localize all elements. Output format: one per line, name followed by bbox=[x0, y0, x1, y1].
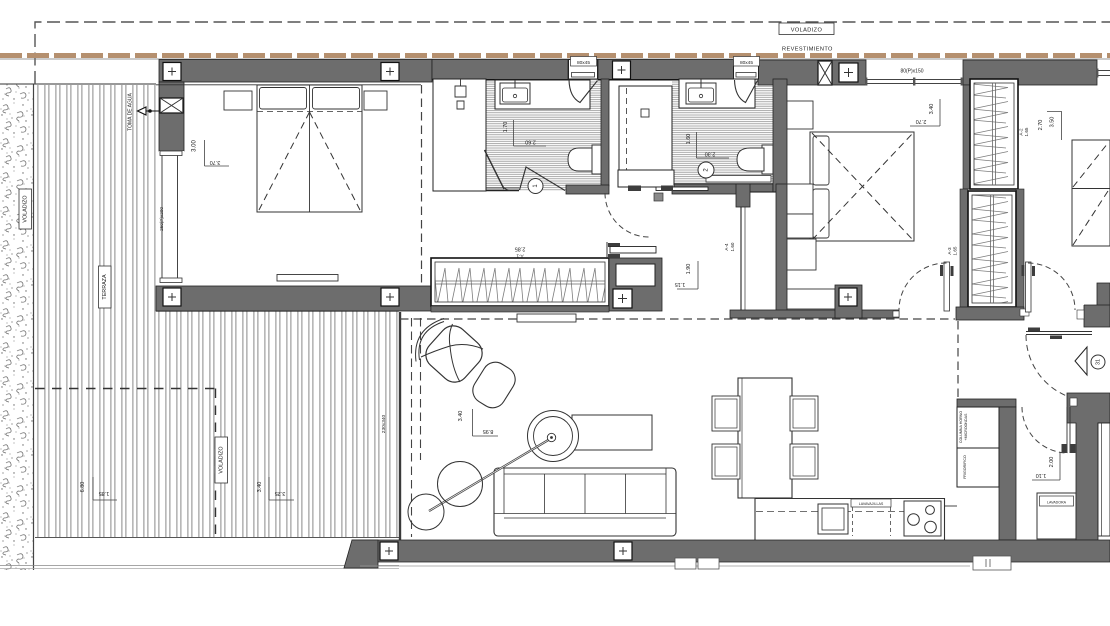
svg-text:LAVAVAJILLAS: LAVAVAJILLAS bbox=[859, 502, 884, 506]
svg-text:A-2: A-2 bbox=[1019, 128, 1024, 136]
svg-text:31: 31 bbox=[1095, 359, 1101, 365]
svg-text:3.40: 3.40 bbox=[458, 411, 464, 422]
svg-text:1.65: 1.65 bbox=[1024, 127, 1029, 136]
svg-text:1.85: 1.85 bbox=[99, 490, 110, 496]
svg-text:3.40: 3.40 bbox=[929, 104, 935, 115]
svg-text:2.60: 2.60 bbox=[525, 139, 536, 145]
svg-text:FRIGORIFICO: FRIGORIFICO bbox=[963, 455, 967, 479]
svg-text:TERRAZA: TERRAZA bbox=[102, 274, 108, 300]
svg-text:2.85: 2.85 bbox=[515, 246, 526, 252]
svg-text:3.70: 3.70 bbox=[210, 159, 221, 165]
svg-text:TOMA DE AGUA: TOMA DE AGUA bbox=[128, 92, 134, 130]
svg-text:80x45: 80x45 bbox=[740, 60, 753, 66]
svg-text:2.30: 2.30 bbox=[705, 151, 716, 157]
svg-text:2.70: 2.70 bbox=[916, 118, 927, 124]
svg-text:2.00: 2.00 bbox=[1049, 457, 1055, 468]
svg-text:3.40: 3.40 bbox=[257, 482, 263, 493]
svg-text:VOLADIZO: VOLADIZO bbox=[791, 28, 823, 34]
svg-text:1.15: 1.15 bbox=[675, 281, 686, 287]
svg-text:8.95: 8.95 bbox=[483, 428, 494, 434]
svg-text:260(P)x200: 260(P)x200 bbox=[159, 207, 164, 231]
svg-text:230x340: 230x340 bbox=[381, 414, 387, 433]
svg-text:6.80: 6.80 bbox=[80, 482, 86, 493]
svg-text:REVESTIMIENTO: REVESTIMIENTO bbox=[782, 47, 833, 53]
svg-text:A-3: A-3 bbox=[947, 247, 952, 255]
svg-text:3.00: 3.00 bbox=[192, 140, 198, 152]
svg-text:A-1: A-1 bbox=[516, 254, 524, 259]
svg-text:VOLADIZO: VOLADIZO bbox=[22, 195, 28, 222]
svg-text:LAVADORA: LAVADORA bbox=[1047, 501, 1067, 505]
svg-text:3.50: 3.50 bbox=[1050, 117, 1056, 128]
svg-text:1.90: 1.90 bbox=[686, 264, 692, 275]
svg-text:1.65: 1.65 bbox=[953, 246, 958, 255]
svg-text:2.70: 2.70 bbox=[1038, 120, 1044, 131]
svg-text:80x45: 80x45 bbox=[577, 60, 590, 66]
svg-text:1.60: 1.60 bbox=[686, 134, 692, 145]
svg-text:+MICROONDAS: +MICROONDAS bbox=[964, 413, 968, 440]
svg-text:COLUMNA HORNO: COLUMNA HORNO bbox=[959, 411, 963, 443]
svg-text:1.70: 1.70 bbox=[503, 122, 509, 133]
svg-text:1.60: 1.60 bbox=[730, 242, 735, 251]
svg-text:A-4: A-4 bbox=[724, 243, 729, 251]
svg-text:VOLADIZO: VOLADIZO bbox=[218, 446, 224, 473]
svg-text:3.25: 3.25 bbox=[275, 490, 286, 496]
svg-text:1.10: 1.10 bbox=[1036, 472, 1047, 478]
svg-text:80(P)x150: 80(P)x150 bbox=[900, 69, 923, 75]
